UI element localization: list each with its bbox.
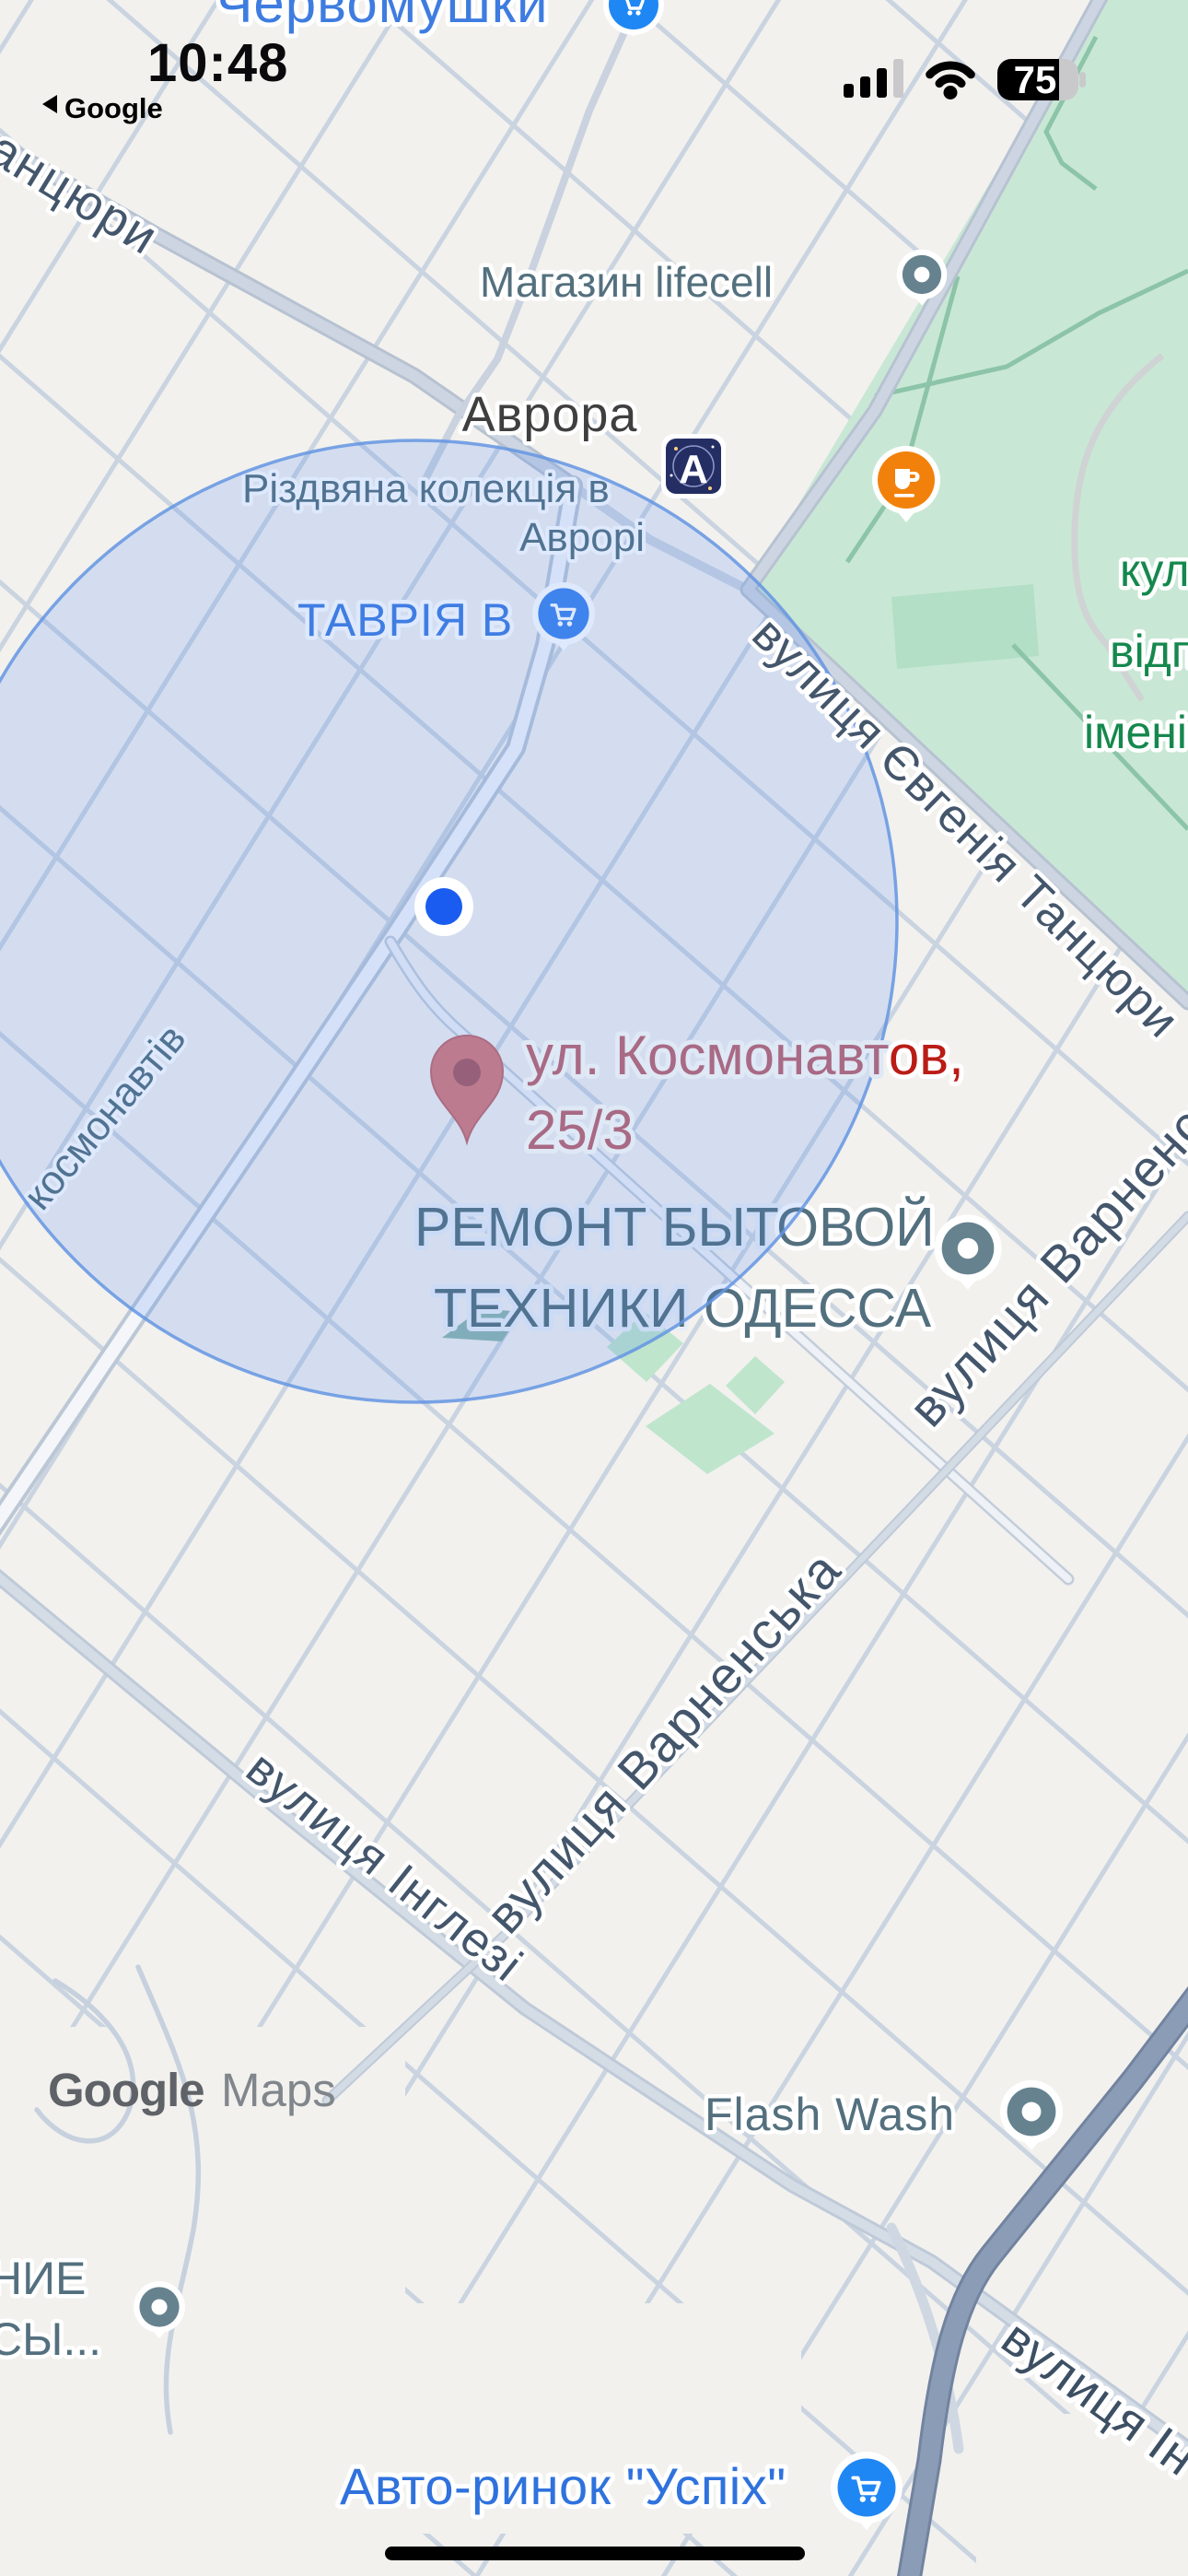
svg-text:Google: Google <box>48 2064 204 2116</box>
svg-text:Google: Google <box>64 92 163 124</box>
svg-text:культ: культ <box>1120 544 1188 596</box>
svg-text:Червомушки: Червомушки <box>215 0 548 34</box>
svg-text:Аврора: Аврора <box>462 387 638 442</box>
svg-text:імені: імені <box>1084 707 1187 758</box>
svg-text:Авто-ринок "Успіх": Авто-ринок "Успіх" <box>340 2457 786 2515</box>
svg-text:СЫ...: СЫ... <box>0 2313 101 2365</box>
svg-text:Flash Wash: Flash Wash <box>705 2089 955 2140</box>
svg-text:Магазин lifecell: Магазин lifecell <box>480 258 773 306</box>
svg-text:Maps: Maps <box>221 2064 336 2116</box>
svg-text:75: 75 <box>1014 58 1057 101</box>
svg-text:відпо: відпо <box>1110 626 1188 677</box>
svg-text:25/3: 25/3 <box>526 1099 634 1161</box>
svg-text:ул. Космонавтов,: ул. Космонавтов, <box>526 1025 964 1086</box>
svg-text:НИЕ: НИЕ <box>0 2253 86 2304</box>
svg-text:10:48: 10:48 <box>147 33 288 93</box>
svg-text:A: A <box>679 447 708 492</box>
